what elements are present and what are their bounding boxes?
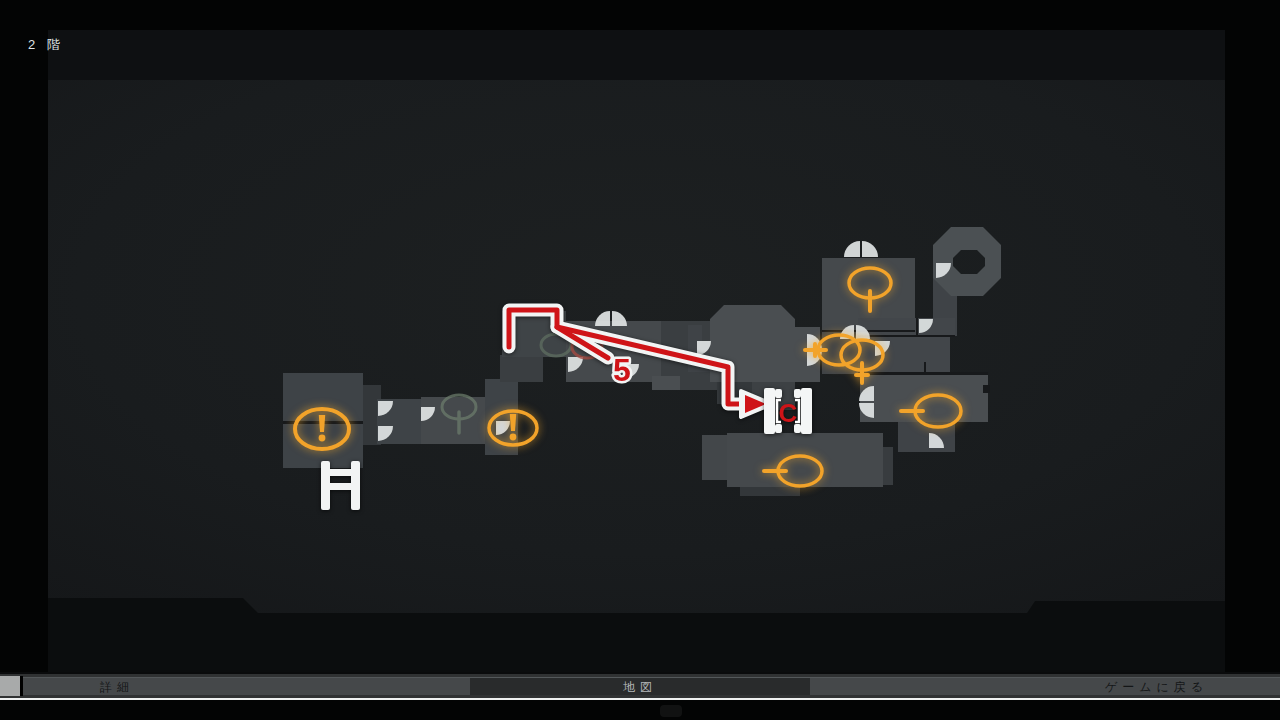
ladder-icon: [321, 461, 360, 510]
map-room: [652, 376, 680, 390]
bar-band-right: [810, 677, 1280, 695]
map-room: [702, 435, 727, 480]
door-leaf: [844, 241, 860, 257]
bar-underline: [0, 698, 1280, 700]
map-wall: [916, 318, 918, 335]
door-leaf: [612, 311, 627, 326]
map-wall: [822, 330, 915, 332]
map-wall: [983, 385, 990, 393]
map-room: [858, 318, 955, 335]
destination-label: C: [779, 398, 798, 428]
tab-map[interactable]: 地図: [623, 679, 657, 696]
map-room-poly: [933, 227, 1001, 296]
ladder-part: [321, 469, 360, 476]
door-leaf: [862, 241, 878, 257]
map-room: [688, 325, 702, 342]
map-wall: [924, 362, 926, 373]
door-frame-part: [764, 388, 775, 434]
ladder-part: [321, 483, 360, 490]
map-room: [883, 447, 893, 485]
map-room: [727, 433, 883, 487]
bar-corner-square: [0, 676, 23, 696]
route-number-label: 5: [613, 352, 631, 388]
door-leaf: [595, 311, 610, 326]
map-wall: [858, 372, 988, 375]
map-screen: 2 階 C5 詳細 地図 ゲームに戻る: [0, 0, 1280, 720]
controller-hint-glyph: [660, 705, 682, 717]
door-frame-part: [794, 389, 801, 398]
door-frame-part: [775, 389, 782, 398]
back-to-game-button[interactable]: ゲームに戻る: [1105, 679, 1208, 696]
floor-map-canvas[interactable]: C5: [0, 0, 1280, 720]
exclamation-dot: [510, 434, 517, 441]
door-frame-part: [801, 388, 812, 434]
bar-band-left: [0, 677, 470, 695]
door-icon: [844, 241, 878, 257]
tab-details[interactable]: 詳細: [100, 679, 134, 696]
map-room: [500, 355, 543, 382]
exclamation-dot: [319, 435, 326, 442]
bottom-bar: 詳細 地図 ゲームに戻る: [0, 672, 1280, 698]
map-wall: [858, 335, 955, 337]
map-room: [740, 487, 800, 496]
